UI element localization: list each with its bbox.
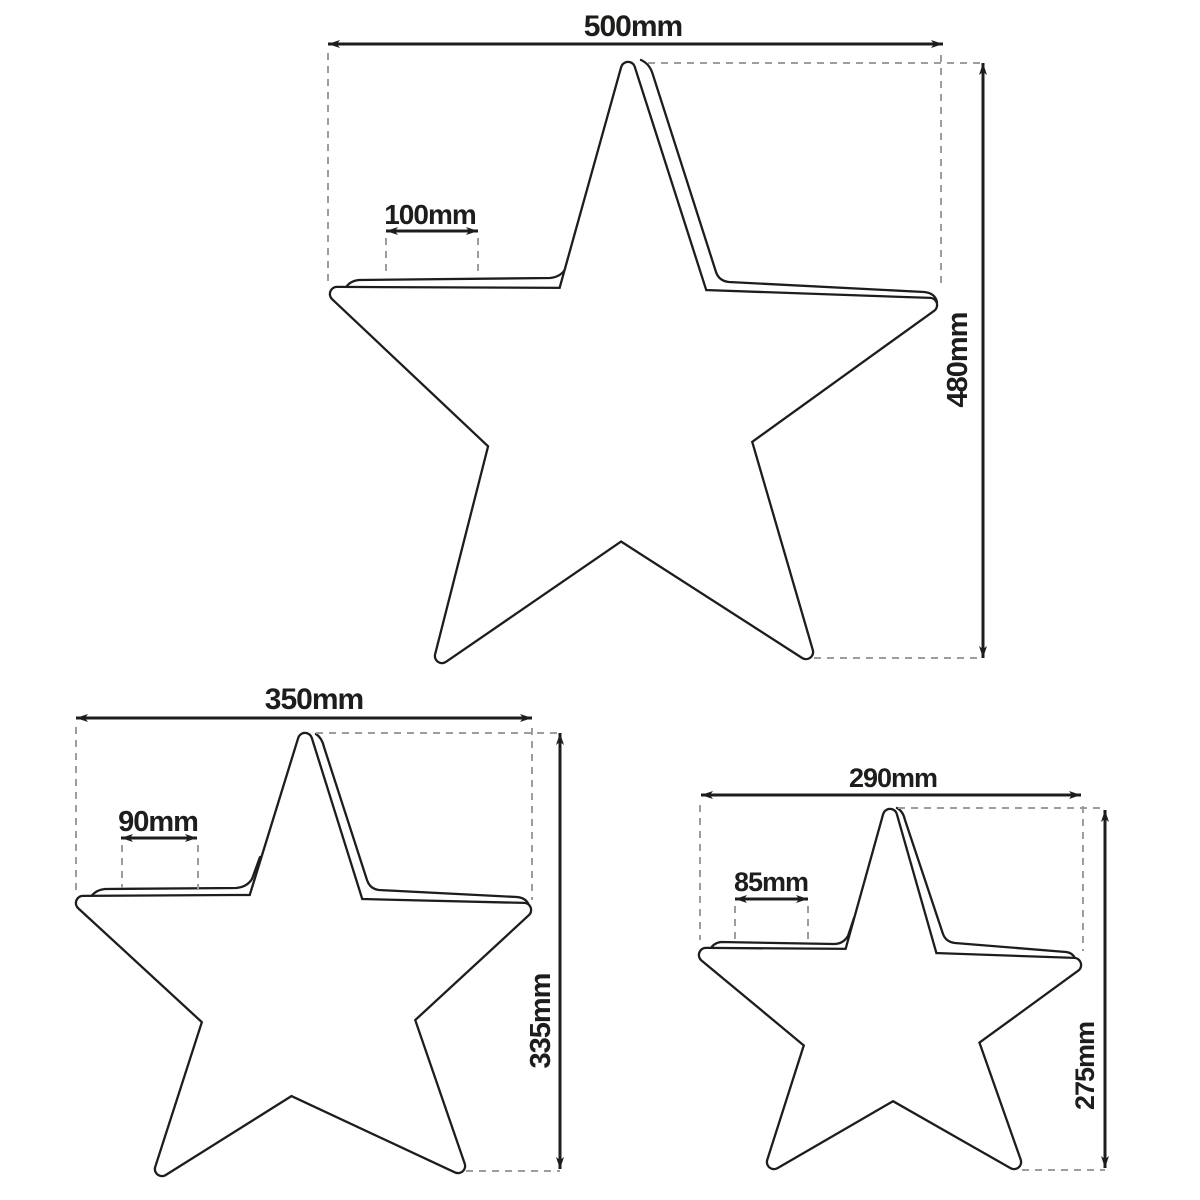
medium-star-face <box>83 740 524 1169</box>
medium-star-back-edge-left-arm <box>90 857 260 898</box>
small-width-label: 290mm <box>849 763 937 793</box>
large-star-face <box>337 69 930 656</box>
medium-depth-label: 90mm <box>118 806 198 838</box>
medium-star-group: 350mm 335mm 90mm <box>76 683 560 1171</box>
small-star-group: 290mm 275mm 85mm <box>700 763 1105 1170</box>
large-star-back-edge-left-arm <box>345 240 576 289</box>
large-depth-label: 100mm <box>384 199 476 230</box>
dimension-diagram: 500mm 480mm 100mm 350mm 335mm 90mm <box>0 0 1200 1200</box>
medium-height-label: 335mm <box>525 974 557 1069</box>
small-height-label: 275mm <box>1070 1022 1100 1110</box>
small-depth-label: 85mm <box>734 867 808 897</box>
large-width-label: 500mm <box>584 10 682 43</box>
large-height-label: 480mm <box>942 313 974 408</box>
diagram-canvas: 500mm 480mm 100mm 350mm 335mm 90mm <box>0 0 1200 1200</box>
large-star-group: 500mm 480mm 100mm <box>328 10 983 658</box>
small-star-back-edge-left-arm <box>710 918 854 950</box>
medium-width-label: 350mm <box>265 683 363 716</box>
